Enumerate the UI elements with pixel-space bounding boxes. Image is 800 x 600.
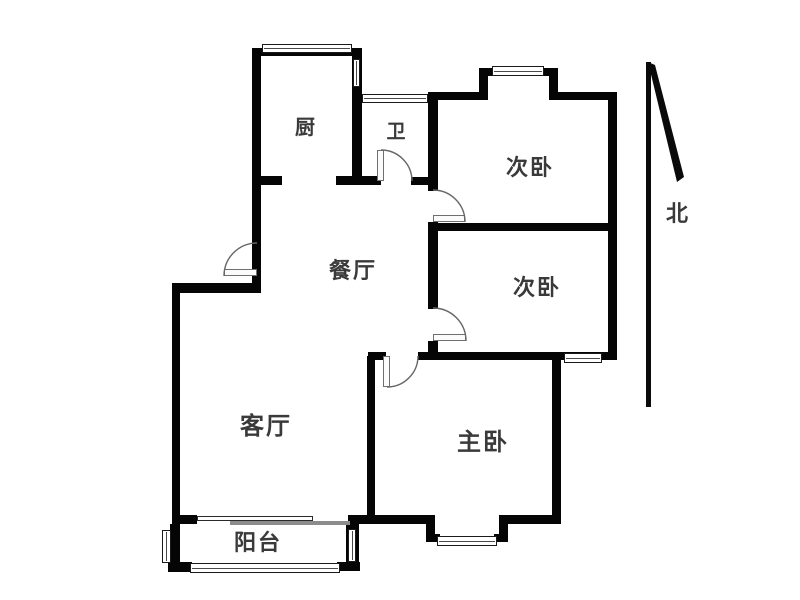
room-label-kitchen: 厨 [295, 118, 317, 138]
balcony-slider-solid [230, 521, 350, 525]
window-pane-line [566, 358, 600, 359]
north-label: 北 [666, 203, 690, 225]
room-label-second-bedroom-1: 次卧 [506, 157, 554, 179]
wall-living-left [172, 283, 180, 527]
wall-master-bottom-right [505, 515, 561, 524]
door-swing-and-compass-overlay [0, 0, 800, 600]
door-master-leaf [383, 356, 390, 387]
wall-kitchen-bottom-left [252, 176, 282, 185]
door-bedroom2-leaf [433, 334, 466, 341]
floor-plan-canvas: 厨卫次卧次卧餐厅客厅主卧阳台北 [0, 0, 800, 600]
window-pane-line [264, 48, 350, 49]
wall-balcony-cap-left [168, 562, 192, 572]
wall-bedrooms-left-b [428, 222, 438, 309]
window-pane-line [439, 541, 495, 542]
window-pane-line [166, 532, 167, 561]
wall-living-master-divider [367, 356, 375, 517]
door-master-swing-arc [387, 356, 418, 387]
room-label-second-bedroom-2: 次卧 [513, 277, 561, 299]
wall-bedroom1-top-left [428, 92, 485, 100]
window-master-bay [437, 536, 497, 546]
window-pane-line [192, 568, 338, 569]
window-pane-line [356, 61, 357, 85]
wall-entry-top [172, 283, 261, 293]
room-label-bathroom: 卫 [386, 123, 407, 142]
door-entry-leaf [224, 269, 257, 276]
window-pane-line [364, 98, 426, 99]
wall-master-right [552, 356, 561, 522]
room-label-dining-room: 餐厅 [329, 260, 377, 282]
window-balcony-right [348, 529, 356, 562]
north-arrow-line [646, 62, 651, 407]
window-kitchen-top [262, 44, 352, 53]
window-bedroom1-bay [492, 66, 544, 76]
wall-living-bottom-stub [172, 515, 197, 524]
room-label-master-bedroom: 主卧 [457, 431, 509, 455]
north-arrow-head [648, 62, 684, 182]
door-bathroom-leaf [377, 150, 384, 181]
wall-kitchen-left [252, 48, 261, 293]
room-label-balcony: 阳台 [234, 532, 282, 554]
door-bathroom-swing-arc [381, 150, 412, 181]
window-bedroom2-south [564, 353, 602, 363]
wall-living-master-bottom [348, 515, 432, 524]
window-bathroom-top [362, 94, 428, 103]
wall-bedrooms-left-a [428, 95, 438, 191]
window-pane-line [494, 71, 542, 72]
room-label-living-room: 客厅 [240, 415, 292, 439]
window-kitchen-right [353, 59, 360, 87]
window-balcony-left [162, 530, 171, 563]
wall-balcony-cap-right [337, 562, 360, 571]
door-bedroom1-leaf [433, 215, 465, 222]
window-balcony-bottom [190, 563, 340, 573]
window-pane-line [352, 531, 353, 560]
wall-bedrooms-divider [428, 223, 617, 231]
wall-kitchen-bottom-right [336, 176, 381, 185]
wall-bedroom1-top-right [549, 92, 617, 100]
